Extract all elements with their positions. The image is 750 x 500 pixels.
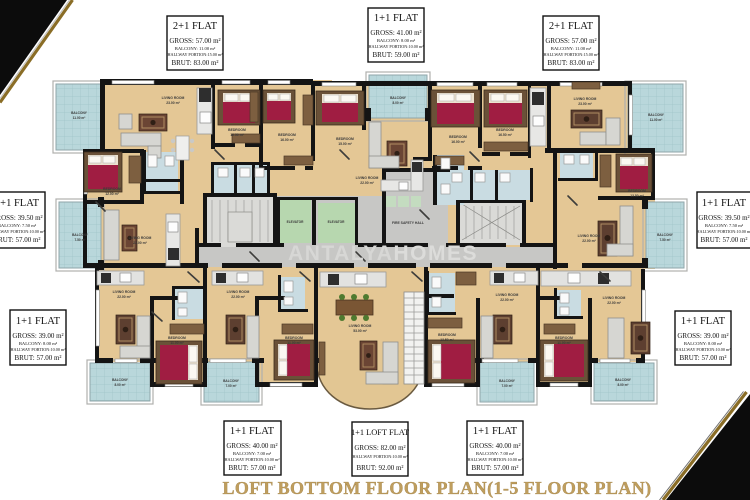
svg-text:HALLWAY PORTION:10.00 m²: HALLWAY PORTION:10.00 m² [225, 457, 281, 462]
svg-text:BALCONY: BALCONY [112, 378, 129, 382]
svg-text:BEDROOM: BEDROOM [449, 135, 467, 139]
svg-text:7.00 m²: 7.00 m² [226, 384, 237, 388]
svg-text:13.50 m²: 13.50 m² [440, 338, 454, 342]
svg-text:11.00 m²: 11.00 m² [557, 341, 571, 345]
svg-text:15.00 m²: 15.00 m² [338, 142, 352, 146]
svg-text:BALCONY: BALCONY [72, 233, 89, 237]
svg-text:LIVING ROOM: LIVING ROOM [574, 97, 597, 101]
svg-text:BEDROOM: BEDROOM [228, 128, 246, 132]
svg-text:BEDROOM: BEDROOM [336, 137, 354, 141]
svg-text:HALLWAY PORTION:10.00 m²: HALLWAY PORTION:10.00 m² [697, 229, 750, 234]
svg-text:LIVING ROOM: LIVING ROOM [129, 236, 152, 240]
svg-text:GROSS: 39.00 m²: GROSS: 39.00 m² [12, 332, 63, 340]
svg-text:LOFT BOTTOM FLOOR PLAN(1-5 FLO: LOFT BOTTOM FLOOR PLAN(1-5 FLOOR PLAN) [222, 478, 651, 499]
svg-text:BALCONY: 8.00 m²: BALCONY: 8.00 m² [377, 38, 416, 43]
svg-text:BRUT: 57.00 m²: BRUT: 57.00 m² [700, 236, 747, 244]
svg-text:1+1 FLAT: 1+1 FLAT [230, 426, 275, 437]
svg-text:1+1 FLAT: 1+1 FLAT [702, 198, 747, 209]
svg-text:22.00 m²: 22.00 m² [117, 295, 131, 299]
svg-text:BALCONY: 11.00 m²: BALCONY: 11.00 m² [175, 46, 216, 51]
svg-text:GROSS: 40.00 m²: GROSS: 40.00 m² [469, 442, 520, 450]
svg-text:2+1 FLAT: 2+1 FLAT [549, 21, 594, 32]
svg-text:53.00 m²: 53.00 m² [353, 329, 367, 333]
svg-text:22.00 m²: 22.00 m² [231, 295, 245, 299]
svg-text:BALCONY: BALCONY [499, 379, 516, 383]
svg-text:1+1 FLAT: 1+1 FLAT [374, 13, 419, 24]
svg-text:HALLWAY PORTION:15.00 m²: HALLWAY PORTION:15.00 m² [168, 52, 224, 57]
svg-text:16.00 m²: 16.00 m² [451, 140, 465, 144]
svg-text:GROSS: 41.00 m²: GROSS: 41.00 m² [370, 29, 421, 37]
svg-text:GROSS: 40.00 m²: GROSS: 40.00 m² [226, 442, 277, 450]
svg-text:BEDROOM: BEDROOM [103, 187, 121, 191]
svg-text:BEDROOM: BEDROOM [278, 133, 296, 137]
svg-text:8.00 m²: 8.00 m² [115, 383, 126, 387]
svg-text:BEDROOM: BEDROOM [285, 336, 303, 340]
svg-text:BEDROOM: BEDROOM [168, 336, 186, 340]
svg-text:BRUT: 57.00 m²: BRUT: 57.00 m² [471, 464, 518, 472]
svg-text:1+1 FLAT: 1+1 FLAT [16, 316, 61, 327]
svg-text:7.50 m²: 7.50 m² [75, 238, 86, 242]
svg-text:GROSS: 57.00 m²: GROSS: 57.00 m² [169, 37, 220, 45]
svg-text:BRUT: 57.00 m²: BRUT: 57.00 m² [0, 236, 41, 244]
svg-text:16.50 m²: 16.50 m² [230, 133, 244, 137]
svg-text:22.00 m²: 22.00 m² [360, 181, 374, 185]
svg-text:22.00 m²: 22.00 m² [133, 241, 147, 245]
svg-text:HALLWAY PORTION:10.00 m²: HALLWAY PORTION:10.00 m² [353, 454, 409, 459]
svg-text:LIVING ROOM: LIVING ROOM [578, 234, 601, 238]
svg-text:BEDROOM: BEDROOM [438, 333, 456, 337]
svg-text:GROSS: 82.00 m²: GROSS: 82.00 m² [354, 444, 405, 452]
svg-text:BALCONY: 7.00 m²: BALCONY: 7.00 m² [476, 451, 515, 456]
svg-text:LIVING ROOM: LIVING ROOM [356, 176, 379, 180]
svg-text:BRUT: 57.00 m²: BRUT: 57.00 m² [679, 354, 726, 362]
svg-text:ELEVATOR: ELEVATOR [328, 220, 346, 224]
svg-text:BALCONY: BALCONY [390, 96, 407, 100]
svg-text:BALCONY: BALCONY [648, 113, 665, 117]
svg-text:HALLWAY PORTION:10.00 m²: HALLWAY PORTION:10.00 m² [369, 44, 425, 49]
svg-text:HALLWAY PORTION:10.00 m²: HALLWAY PORTION:10.00 m² [11, 347, 67, 352]
svg-text:BALCONY: 7.50 m²: BALCONY: 7.50 m² [705, 223, 744, 228]
svg-text:BEDROOM: BEDROOM [555, 336, 573, 340]
svg-text:BRUT: 83.00 m²: BRUT: 83.00 m² [547, 59, 594, 67]
svg-text:2+1 FLAT: 2+1 FLAT [173, 21, 218, 32]
svg-text:BALCONY: BALCONY [223, 379, 240, 383]
svg-text:LIVING ROOM: LIVING ROOM [603, 296, 626, 300]
svg-text:7.50 m²: 7.50 m² [660, 238, 671, 242]
svg-text:23.00 m²: 23.00 m² [166, 101, 180, 105]
svg-text:GROSS: 39.50 m²: GROSS: 39.50 m² [698, 214, 749, 222]
svg-text:BRUT: 59.00 m²: BRUT: 59.00 m² [372, 51, 419, 59]
svg-text:22.00 m²: 22.00 m² [607, 301, 621, 305]
svg-text:11.00 m²: 11.00 m² [73, 116, 86, 120]
svg-text:BEDROOM: BEDROOM [496, 128, 514, 132]
svg-text:LIVING ROOM: LIVING ROOM [227, 290, 250, 294]
svg-text:12.00 m²: 12.00 m² [105, 192, 119, 196]
svg-text:BRUT: 92.00 m²: BRUT: 92.00 m² [356, 464, 403, 472]
svg-text:HALLWAY PORTION:10.00 m²: HALLWAY PORTION:10.00 m² [0, 229, 45, 234]
svg-text:13.50 m²: 13.50 m² [630, 194, 644, 198]
svg-text:ANTALYAHOMES: ANTALYAHOMES [288, 242, 478, 265]
svg-text:BRUT: 83.00 m²: BRUT: 83.00 m² [171, 59, 218, 67]
svg-text:HALLWAY PORTION:10.00 m²: HALLWAY PORTION:10.00 m² [468, 457, 524, 462]
svg-text:1+1 FLAT: 1+1 FLAT [0, 198, 40, 209]
svg-text:7.00 m²: 7.00 m² [502, 384, 513, 388]
svg-text:LIVING ROOM: LIVING ROOM [349, 324, 372, 328]
svg-text:8.00 m²: 8.00 m² [393, 101, 404, 105]
svg-text:BALCONY: 8.00 m²: BALCONY: 8.00 m² [684, 341, 723, 346]
svg-text:BRUT: 57.00 m²: BRUT: 57.00 m² [14, 354, 61, 362]
svg-text:11.00 m²: 11.00 m² [650, 118, 663, 122]
svg-text:1+1 FLAT: 1+1 FLAT [473, 426, 518, 437]
svg-text:BALCONY: 11.00 m²: BALCONY: 11.00 m² [551, 46, 592, 51]
svg-text:BALCONY: 7.50 m²: BALCONY: 7.50 m² [0, 223, 37, 228]
svg-text:8.00 m²: 8.00 m² [618, 383, 629, 387]
svg-text:ELEVATOR: ELEVATOR [287, 220, 305, 224]
svg-text:GROSS: 57.00 m²: GROSS: 57.00 m² [545, 37, 596, 45]
svg-text:BALCONY: BALCONY [657, 233, 674, 237]
svg-text:HALLWAY PORTION:15.00 m²: HALLWAY PORTION:15.00 m² [544, 52, 600, 57]
svg-text:22.00 m²: 22.00 m² [500, 298, 514, 302]
svg-text:BALCONY: 7.00 m²: BALCONY: 7.00 m² [233, 451, 272, 456]
svg-text:1+1 FLAT: 1+1 FLAT [681, 316, 726, 327]
svg-text:BALCONY: 8.00 m²: BALCONY: 8.00 m² [19, 341, 58, 346]
svg-text:11.00 m²: 11.00 m² [287, 341, 301, 345]
svg-text:LIVING ROOM: LIVING ROOM [113, 290, 136, 294]
svg-text:23.00 m²: 23.00 m² [578, 102, 592, 106]
svg-text:GROSS: 39.00 m²: GROSS: 39.00 m² [677, 332, 728, 340]
svg-text:16.50 m²: 16.50 m² [498, 133, 512, 137]
svg-text:LIVING ROOM: LIVING ROOM [162, 96, 185, 100]
svg-text:LIVING ROOM: LIVING ROOM [496, 293, 519, 297]
svg-text:HALLWAY PORTION:10.00 m²: HALLWAY PORTION:10.00 m² [676, 347, 732, 352]
svg-text:16.00 m²: 16.00 m² [280, 138, 294, 142]
svg-text:1+1 LOFT FLAT: 1+1 LOFT FLAT [351, 428, 409, 437]
svg-text:GROSS: 39.50 m²: GROSS: 39.50 m² [0, 214, 43, 222]
svg-text:BEDROOM: BEDROOM [628, 189, 646, 193]
svg-text:22.00 m²: 22.00 m² [582, 239, 596, 243]
svg-text:BALCONY: BALCONY [615, 378, 632, 382]
svg-text:BALCONY: BALCONY [71, 111, 88, 115]
svg-text:11.00 m²: 11.00 m² [170, 341, 184, 345]
svg-text:BRUT: 57.00 m²: BRUT: 57.00 m² [228, 464, 275, 472]
svg-text:FIRE SAFETY HALL: FIRE SAFETY HALL [392, 221, 424, 225]
